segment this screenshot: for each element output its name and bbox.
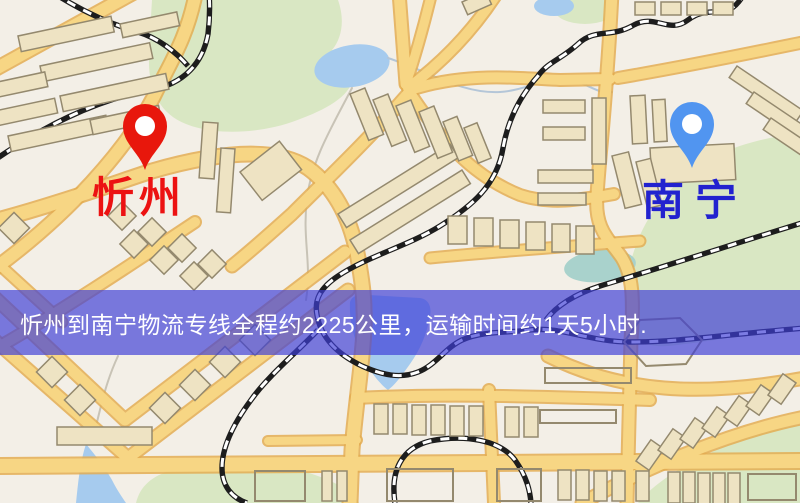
origin-pin-icon	[121, 102, 169, 174]
logistics-route-map: 忻州 南宁 忻州到南宁物流专线全程约2225公里，运输时间约1天5小时.	[0, 0, 800, 503]
destination-city-label: 南宁	[642, 180, 748, 222]
origin-city-label: 忻州	[92, 177, 186, 219]
destination-pin-icon	[668, 100, 716, 172]
route-info-banner: 忻州到南宁物流专线全程约2225公里，运输时间约1天5小时.	[0, 290, 800, 355]
route-info-text: 忻州到南宁物流专线全程约2225公里，运输时间约1天5小时.	[0, 306, 647, 340]
map-canvas	[0, 0, 800, 503]
